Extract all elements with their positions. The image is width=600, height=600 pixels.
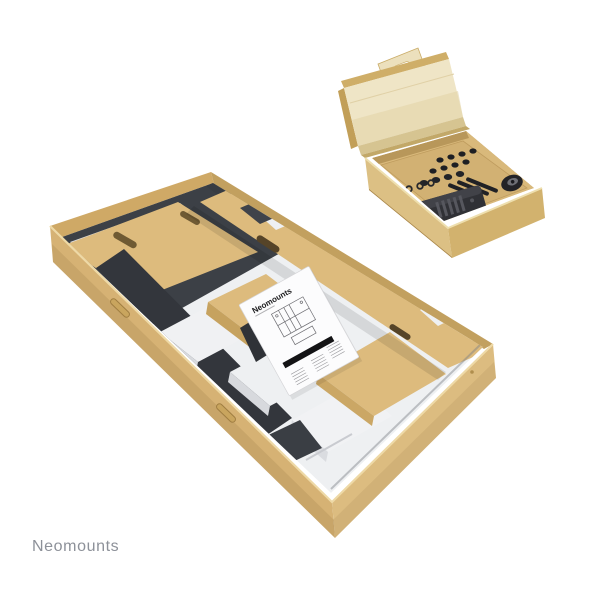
- accessory-box: [338, 48, 545, 258]
- wall-vent-hole-icon: [470, 370, 474, 374]
- packaging-render: Neomounts: [0, 0, 600, 600]
- brand-watermark: Neomounts: [32, 538, 119, 556]
- product-image: Neomounts: [0, 0, 600, 600]
